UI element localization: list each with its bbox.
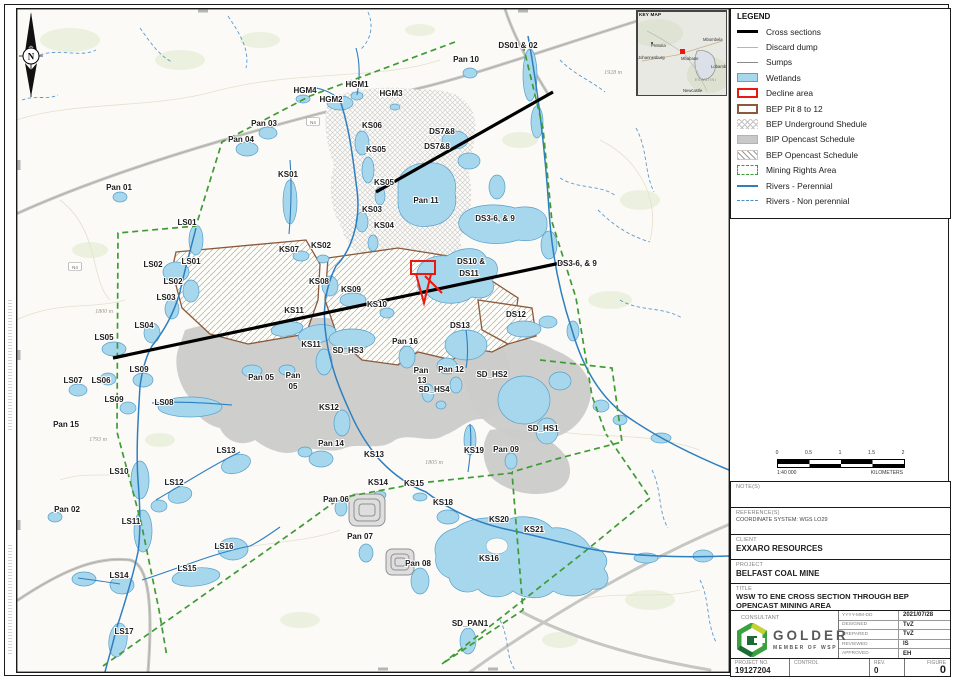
map-label: LS17 (114, 627, 134, 636)
map-label: KS02 (311, 241, 332, 250)
map-label: Pan 07 (347, 532, 373, 541)
map-label: LS09 (129, 365, 149, 374)
map-label: LS05 (94, 333, 114, 342)
project-label: PROJECT (731, 560, 950, 568)
key-map-city-label: Mbabane (681, 56, 699, 61)
notes-section: NOTE(S) (730, 481, 951, 508)
consultant-field-row: REVIEWEDIS (839, 640, 950, 650)
legend-item: BEP Opencast Schedule (737, 147, 950, 162)
map-label: Pan 16 (392, 337, 418, 346)
map-label: DS7&8 (424, 142, 450, 151)
map-label: DS3-6, & 9 (557, 259, 597, 268)
field-value: EH (898, 649, 950, 658)
key-map-inset: KEY MAP PretoriaJohannesburgMbombelaMbab… (636, 10, 727, 96)
legend-item: Cross sections (737, 24, 950, 39)
consultant-field-row: YYYY-MM-DD2021/07/28 (839, 611, 950, 621)
reference-label: REFERENCE(S) (731, 508, 950, 516)
elevation-label: 1805 m (425, 460, 444, 466)
project-no-label: PROJECT NO. (731, 659, 789, 666)
river-perennial-line-icon (737, 180, 758, 191)
map-label: Pan 15 (53, 420, 79, 429)
map-label: HGM4 (293, 86, 317, 95)
bep-pit-swatch-icon (737, 104, 758, 114)
map-label: KS18 (433, 498, 454, 507)
legend-item: Mining Rights Area (737, 163, 950, 178)
map-label: KS10 (367, 300, 388, 309)
map-label: DS10 & (457, 257, 485, 266)
map-label: LS13 (216, 446, 236, 455)
consultant-field-row: DESIGNEDTvZ (839, 621, 950, 631)
map-label: Pan 08 (405, 559, 431, 568)
map-label: Pan 02 (54, 505, 80, 514)
map-label: SD_HS4 (418, 385, 450, 394)
legend-item-label: Wetlands (766, 73, 801, 83)
road-shield-icon: N4 (307, 118, 320, 126)
map-label: LS02 (163, 277, 183, 286)
field-label: YYYY-MM-DD (839, 613, 898, 618)
scale-tick: 1.5 (868, 450, 875, 456)
cross-section-line-icon (737, 26, 758, 37)
map-label: KS05 (366, 145, 387, 154)
discard-dump-line-icon (737, 42, 758, 53)
figure-cell: FIGURE 0 (904, 659, 950, 676)
map-label: LS01 (177, 218, 197, 227)
field-value: TvZ (898, 621, 950, 630)
scale-tick: 1 (839, 450, 842, 456)
rev-cell: REV. 0 (869, 659, 904, 676)
mining-rights-dash-icon (737, 165, 758, 175)
client-label: CLIENT (731, 535, 950, 543)
map-label: KS14 (368, 478, 389, 487)
legend-items: Cross sectionsDiscard dumpSumpsWetlandsD… (737, 24, 950, 209)
map-label: HGM3 (379, 89, 403, 98)
project-no-cell: PROJECT NO. 19127204 (731, 659, 789, 676)
rev-value: 0 (870, 666, 904, 675)
legend-item-label: BIP Opencast Schedule (766, 134, 855, 144)
map-label: KS15 (404, 479, 425, 488)
map-label: Pan 11 (413, 196, 439, 205)
map-label: DS12 (506, 310, 527, 319)
map-label: LS01 (181, 257, 201, 266)
map-label: KS11 (284, 306, 304, 315)
map-label: Pan 01 (106, 183, 132, 192)
map-label: Pan (414, 366, 429, 375)
reference-value: COORDINATE SYSTEM: WGS LO29 (731, 516, 950, 523)
golder-hexagon-icon (737, 623, 767, 657)
key-map-city-label: Newcastle (683, 88, 703, 93)
legend-item: Wetlands (737, 70, 950, 85)
map-label: Pan (286, 371, 301, 380)
legend-item: BEP Underground Shedule (737, 116, 950, 131)
map-label: LS16 (214, 542, 234, 551)
legend-item: Rivers - Perennial (737, 178, 950, 193)
legend-item-label: BEP Pit 8 to 12 (766, 104, 823, 114)
map-label: LS03 (156, 293, 176, 302)
title-label: TITLE (731, 584, 950, 592)
road-shield-icon: N4 (69, 263, 82, 271)
key-map-title: KEY MAP (639, 12, 661, 17)
map-label: LS02 (143, 260, 163, 269)
map-label: Pan 10 (453, 55, 479, 64)
consultant-section: CONSULTANT GOLDER MEMBER OF WSP YYYY-MM-… (730, 610, 951, 659)
map-label: Pan 06 (323, 495, 349, 504)
legend-item: BIP Opencast Schedule (737, 132, 950, 147)
map-label: LS15 (177, 564, 197, 573)
map-label: KS05 (374, 178, 395, 187)
consultant-left: CONSULTANT GOLDER MEMBER OF WSP (731, 611, 838, 658)
control-cell: CONTROL (789, 659, 869, 676)
road-shield-label: N4 (72, 265, 78, 270)
margin-vertical-text (8, 545, 12, 655)
legend-item-label: Rivers - Non perennial (766, 196, 849, 206)
legend-item-label: Cross sections (766, 27, 821, 37)
legend-item-label: BEP Underground Shedule (766, 119, 867, 129)
field-value: TvZ (898, 630, 950, 639)
wetlands-swatch-icon (737, 73, 758, 82)
elevation-label: 1928 m (604, 70, 623, 76)
elevation-label: 1793 m (89, 437, 108, 443)
consultant-fields: YYYY-MM-DD2021/07/28DESIGNEDTvZPREPAREDT… (838, 611, 950, 658)
map-label: KS16 (479, 554, 500, 563)
key-map-city-label: Pretoria (651, 43, 666, 48)
river-nonperennial-dash-icon (737, 195, 758, 206)
key-map-city-label: Mbombela (703, 37, 723, 42)
map-label: LS11 (122, 517, 141, 526)
bep-opencast-hatch-icon (737, 150, 758, 160)
legend-item: Sumps (737, 55, 950, 70)
map-label: Pan 14 (318, 439, 344, 448)
map-label: Pan 12 (438, 365, 464, 374)
map-label: LS12 (164, 478, 184, 487)
legend-title: LEGEND (737, 12, 950, 21)
map-label: LS10 (109, 467, 129, 476)
map-label: KS20 (489, 515, 510, 524)
golder-logo: GOLDER MEMBER OF WSP (737, 623, 849, 657)
consultant-field-row: PREPAREDTvZ (839, 630, 950, 640)
legend-item: BEP Pit 8 to 12 (737, 101, 950, 116)
scale-tick: 0 (776, 450, 779, 456)
map-label: KS09 (341, 285, 362, 294)
elevation-label: 1800 m (95, 309, 114, 315)
legend-item: Discard dump (737, 39, 950, 54)
map-label: HGM2 (319, 95, 343, 104)
legend-item-label: Sumps (766, 57, 792, 67)
key-map-city-label: Johannesburg (638, 55, 665, 60)
scale-bar-graphic (777, 459, 905, 468)
margin-vertical-text (8, 300, 12, 430)
map-label: DS11 (459, 269, 479, 278)
control-label: CONTROL (790, 659, 869, 666)
drawing-title: WSW TO ENE CROSS SECTION THROUGH BEP OPE… (731, 592, 950, 610)
map-label: KS03 (362, 205, 383, 214)
legend-panel: LEGEND Cross sectionsDiscard dumpSumpsWe… (730, 8, 951, 219)
bip-opencast-swatch-icon (737, 135, 758, 144)
legend-item-label: Decline area (766, 88, 813, 98)
map-label: LS08 (154, 398, 174, 407)
map-sheet: { "legend": { "title": "LEGEND", "items"… (0, 0, 955, 682)
key-map-city-label: Lobamba (711, 64, 727, 69)
scale-tick: 0.5 (805, 450, 812, 456)
consultant-field-row: APPROVEDEH (839, 649, 950, 658)
map-label: KS07 (279, 245, 300, 254)
map-label: 13 (418, 376, 427, 385)
map-label: KS21 (524, 525, 545, 534)
client-value: EXXARO RESOURCES (731, 543, 950, 553)
map-label: HGM1 (345, 80, 369, 89)
map-label: Pan 04 (228, 135, 254, 144)
scale-tick: 2 (902, 450, 905, 456)
map-label: Pan 09 (493, 445, 519, 454)
map-label: LS14 (109, 571, 129, 580)
logo-name: GOLDER (773, 629, 849, 643)
map-label: LS07 (63, 376, 83, 385)
field-value: 2021/07/28 (898, 611, 950, 620)
consultant-label: CONSULTANT (736, 613, 779, 621)
decline-area-swatch-icon (737, 88, 758, 98)
rev-label: REV. (870, 659, 904, 666)
scale-bar: 00.511.52 1:40 000 KILOMETERS (730, 450, 951, 481)
legend-item-label: Mining Rights Area (766, 165, 836, 175)
svg-text:N: N (28, 52, 35, 62)
client-section: CLIENT EXXARO RESOURCES (730, 534, 951, 560)
legend-item-label: Discard dump (766, 42, 818, 52)
map-label: KS04 (374, 221, 395, 230)
scale-units: KILOMETERS (871, 470, 903, 476)
key-map-city-label: ESWATINI (695, 78, 716, 82)
map-label: LS04 (134, 321, 154, 330)
map-label: KS01 (278, 170, 299, 179)
legend-item: Decline area (737, 86, 950, 101)
legend-item: Rivers - Non perennial (737, 193, 950, 208)
map-label: SD_HS1 (527, 424, 559, 433)
logo-tagline: MEMBER OF WSP (773, 645, 849, 651)
legend-item-label: BEP Opencast Schedule (766, 150, 858, 160)
project-section: PROJECT BELFAST COAL MINE (730, 559, 951, 584)
legend-item-label: Rivers - Perennial (766, 181, 833, 191)
sumps-line-icon (737, 57, 758, 68)
scale-ratio: 1:40 000 (777, 470, 796, 476)
notes-label: NOTE(S) (731, 482, 950, 490)
project-value: BELFAST COAL MINE (731, 568, 950, 578)
bottom-row: PROJECT NO. 19127204 CONTROL REV. 0 FIGU… (730, 658, 951, 677)
map-label: DS13 (450, 321, 471, 330)
map-label: SD_PAN1 (452, 619, 489, 628)
reference-section: REFERENCE(S) COORDINATE SYSTEM: WGS LO29 (730, 507, 951, 535)
map-label: 05 (289, 382, 298, 391)
bep-underground-hatch-icon (737, 119, 758, 129)
title-section: TITLE WSW TO ENE CROSS SECTION THROUGH B… (730, 583, 951, 611)
map-label: DS01 & 02 (498, 41, 538, 50)
map-label: DS7&8 (429, 127, 455, 136)
map-label: SD_HS3 (332, 346, 364, 355)
road-shield-label: N4 (310, 120, 316, 125)
map-label: KS13 (364, 450, 385, 459)
map-label: KS06 (362, 121, 383, 130)
map-label: KS12 (319, 403, 340, 412)
map-canvas: N N4N4 1928 m1800 m1793 m1805 m DS01 & 0… (16, 8, 730, 673)
field-value: IS (898, 640, 950, 649)
project-no-value: 19127204 (731, 666, 789, 675)
map-label: LS06 (91, 376, 111, 385)
map-label: Pan 03 (251, 119, 277, 128)
map-label: DS3-6, & 9 (475, 214, 515, 223)
map-label: KS19 (464, 446, 485, 455)
map-label: Pan 05 (248, 373, 274, 382)
map-label: KS08 (309, 277, 330, 286)
map-label: LS09 (104, 395, 124, 404)
map-label: KS11 (301, 340, 321, 349)
site-location-marker (680, 49, 685, 54)
map-label: SD_HS2 (476, 370, 508, 379)
